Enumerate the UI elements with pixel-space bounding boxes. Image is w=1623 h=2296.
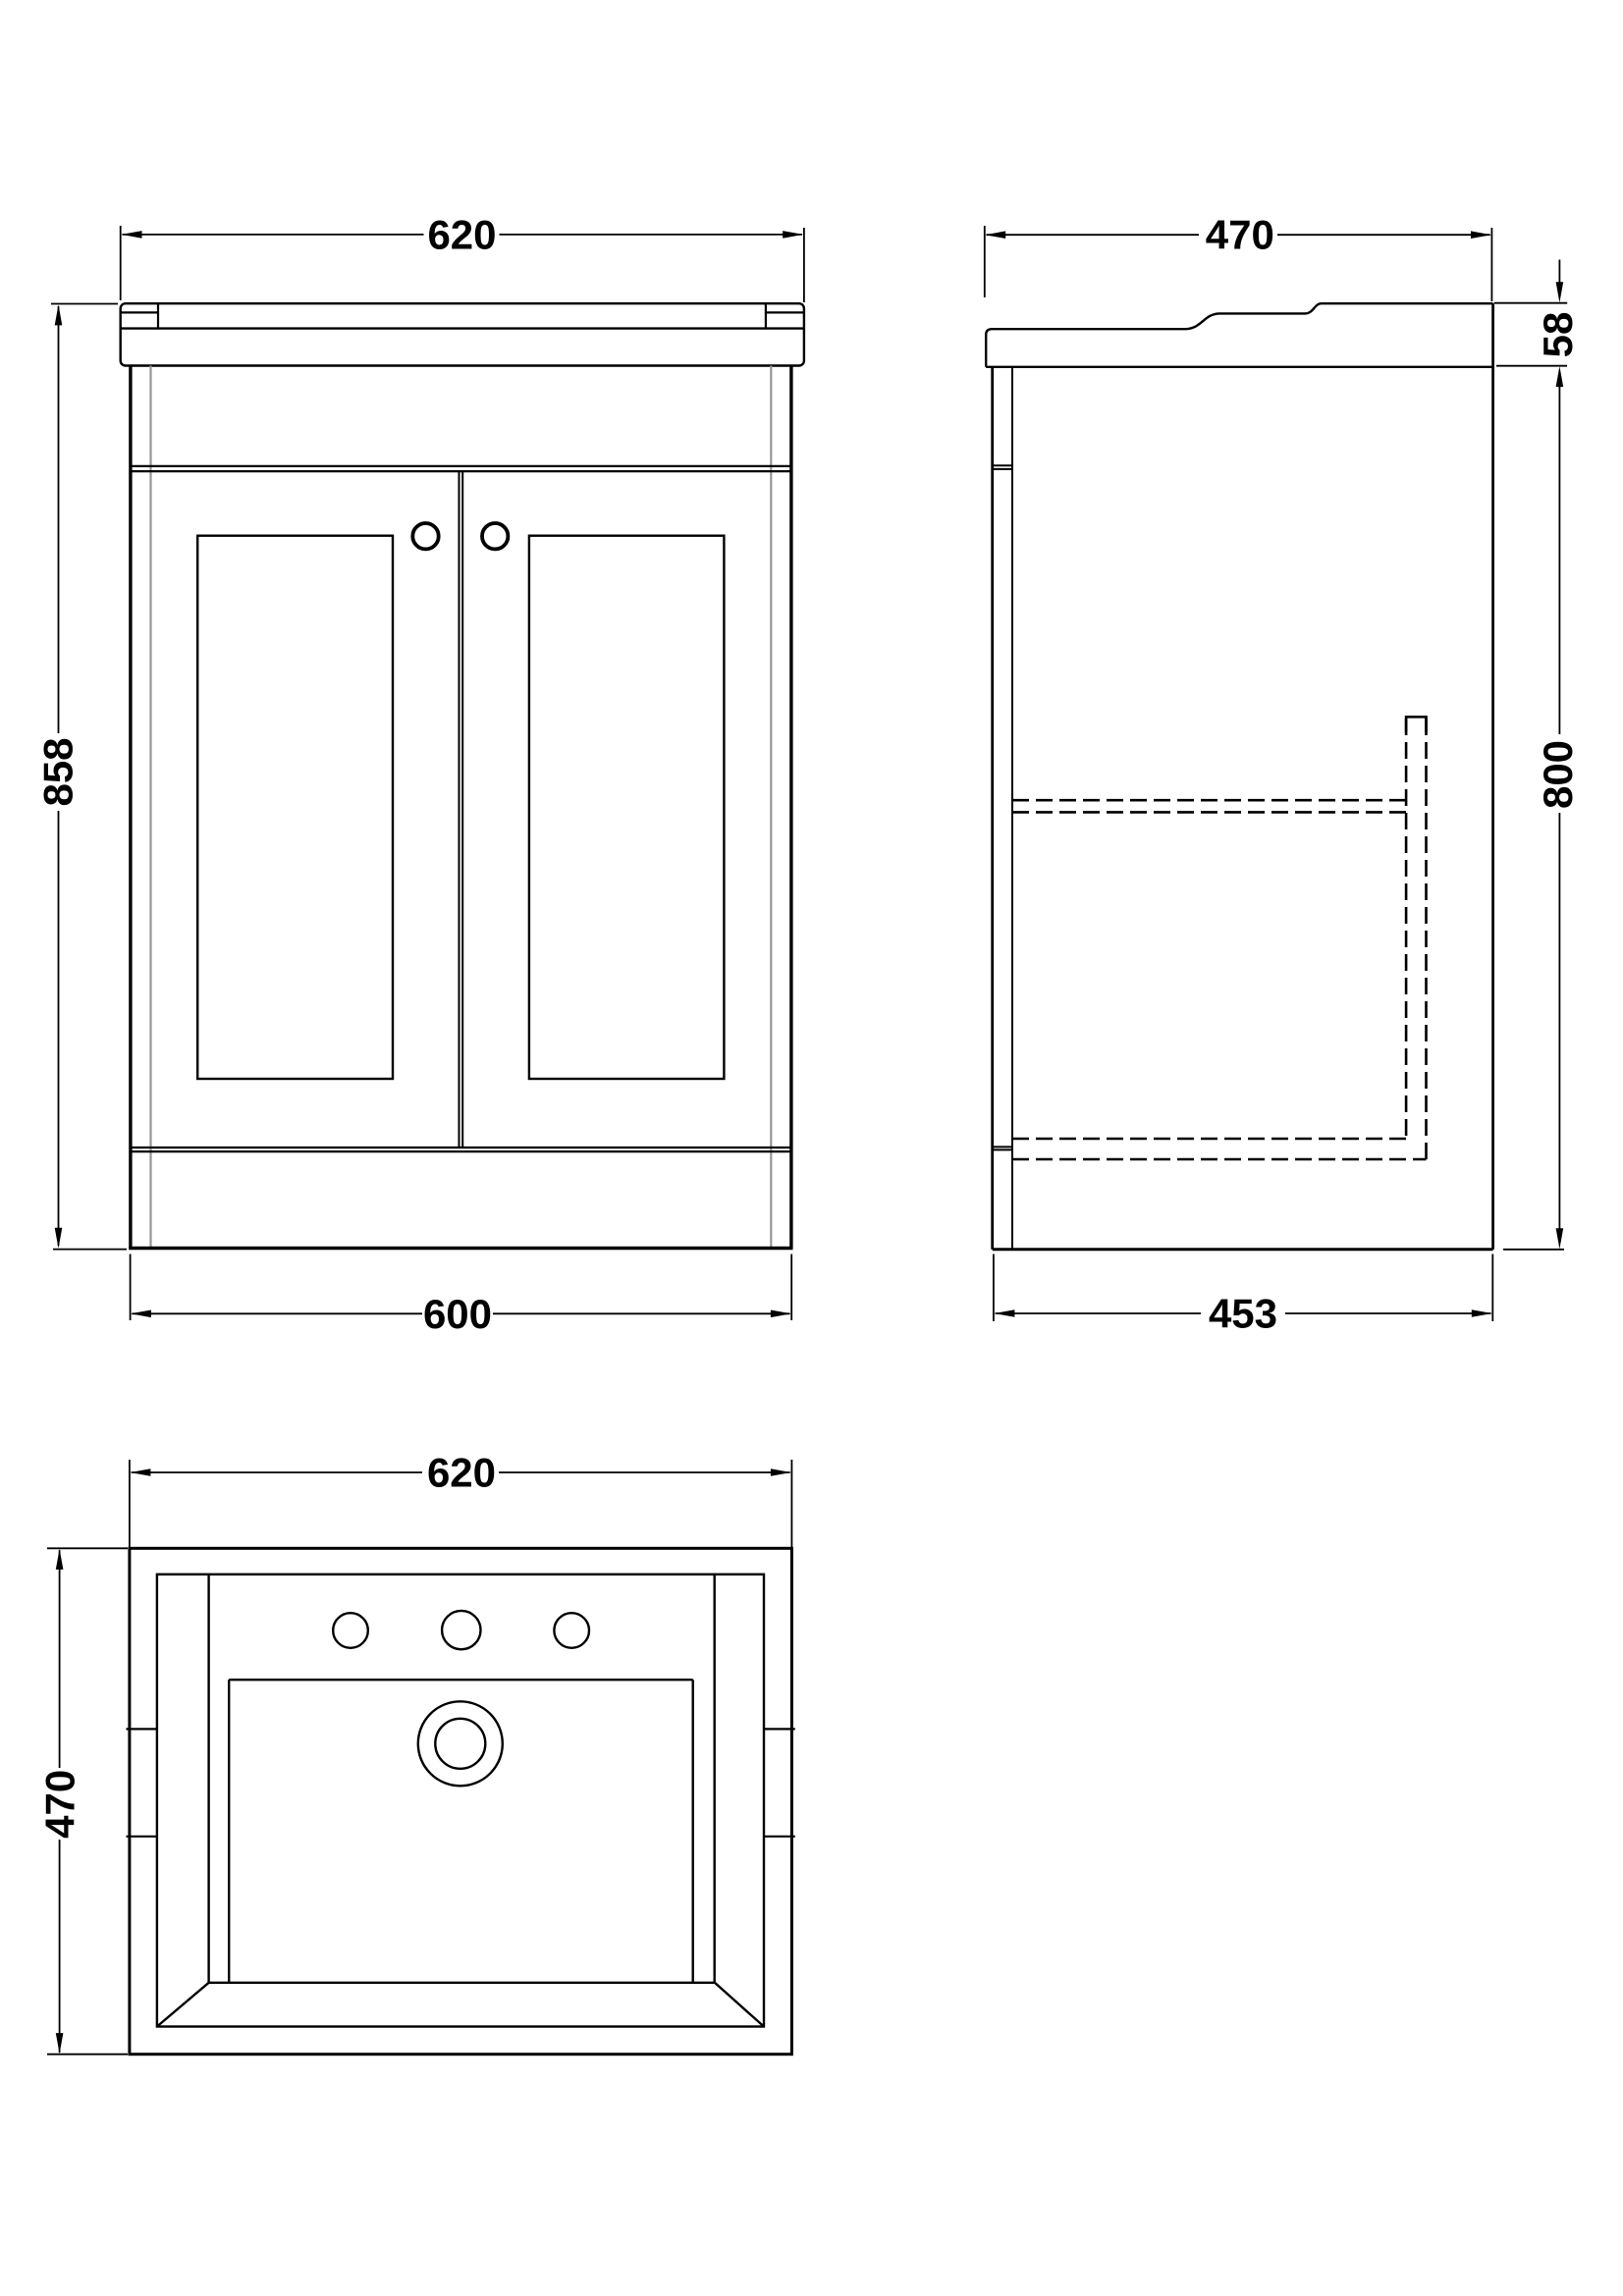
svg-text:470: 470 — [1206, 212, 1274, 258]
svg-text:470: 470 — [37, 1770, 83, 1839]
svg-text:800: 800 — [1535, 740, 1581, 809]
svg-text:453: 453 — [1209, 1291, 1277, 1337]
svg-text:858: 858 — [35, 737, 81, 806]
svg-text:620: 620 — [427, 212, 496, 258]
svg-text:58: 58 — [1535, 312, 1581, 358]
svg-text:620: 620 — [427, 1450, 496, 1496]
svg-text:600: 600 — [423, 1291, 492, 1337]
